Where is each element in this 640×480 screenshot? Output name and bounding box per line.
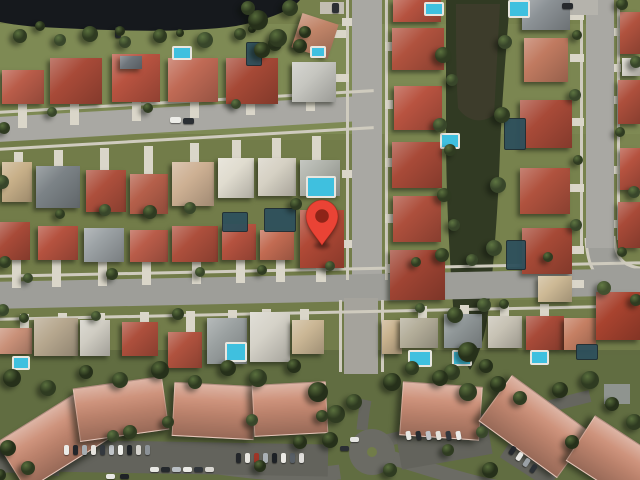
screened-pool xyxy=(504,118,526,150)
car xyxy=(194,467,203,472)
tree xyxy=(435,248,449,262)
driveway xyxy=(132,102,141,121)
driveway xyxy=(306,102,315,111)
car xyxy=(281,453,286,463)
tree xyxy=(490,376,506,392)
driveway xyxy=(190,102,199,118)
car xyxy=(340,446,349,451)
tree xyxy=(257,265,267,275)
tree xyxy=(143,103,153,113)
tree xyxy=(499,299,509,309)
house-roof xyxy=(620,148,640,190)
tree xyxy=(572,30,582,40)
car xyxy=(350,437,359,442)
tree xyxy=(316,410,328,422)
tree xyxy=(446,74,458,86)
house-roof xyxy=(168,58,218,102)
screened-pool xyxy=(264,208,296,232)
tree xyxy=(231,99,241,109)
tree xyxy=(220,360,236,376)
driveway xyxy=(190,143,199,163)
car xyxy=(150,467,159,472)
house-roof xyxy=(292,320,324,354)
driveway xyxy=(52,260,61,287)
car xyxy=(236,453,241,463)
driveway xyxy=(70,104,79,125)
house-roof xyxy=(292,62,336,102)
tree xyxy=(123,425,137,439)
tree xyxy=(287,359,301,373)
driveway xyxy=(570,246,584,254)
tree xyxy=(617,247,627,257)
house-roof xyxy=(538,276,572,302)
tree xyxy=(442,444,454,456)
screened-pool xyxy=(222,212,248,232)
tree xyxy=(79,365,93,379)
pin-dot xyxy=(315,209,329,223)
house-roof xyxy=(0,328,32,354)
tree xyxy=(241,1,255,15)
tree xyxy=(628,186,640,198)
house-roof xyxy=(172,162,214,206)
driveway xyxy=(572,280,584,288)
driveway xyxy=(236,260,245,283)
tree xyxy=(254,460,266,472)
driveway xyxy=(540,304,549,316)
tree xyxy=(3,369,21,387)
tree xyxy=(476,426,488,438)
tree xyxy=(444,144,456,156)
driveway xyxy=(232,140,241,158)
tree xyxy=(383,463,397,477)
car xyxy=(64,445,69,455)
driveway xyxy=(12,260,21,288)
screened-pool xyxy=(506,240,526,270)
swimming-pool xyxy=(530,350,549,365)
driveway xyxy=(144,146,153,174)
house-roof xyxy=(36,166,80,208)
driveway xyxy=(276,260,285,282)
tree xyxy=(435,47,451,63)
car xyxy=(205,467,214,472)
house-roof xyxy=(400,318,438,348)
car xyxy=(172,467,181,472)
house-roof xyxy=(618,80,640,124)
tree xyxy=(411,257,421,267)
tree xyxy=(346,394,362,410)
swimming-pool xyxy=(172,46,192,60)
map-pin[interactable] xyxy=(303,198,341,248)
driveway xyxy=(142,262,151,285)
swimming-pool xyxy=(310,46,326,58)
tree xyxy=(91,311,101,321)
driveway xyxy=(570,184,584,192)
tree xyxy=(246,414,258,426)
driveway xyxy=(300,309,309,320)
car xyxy=(332,3,339,13)
tree xyxy=(405,361,419,375)
sidewalk xyxy=(346,0,349,280)
screened-pool xyxy=(576,344,598,360)
driveway xyxy=(342,170,352,178)
car xyxy=(183,467,192,472)
driveway xyxy=(570,118,584,126)
car xyxy=(299,453,304,463)
tree xyxy=(543,252,553,262)
road-curve xyxy=(362,400,366,430)
street xyxy=(352,0,382,282)
house-roof xyxy=(488,316,522,348)
tree xyxy=(153,29,167,43)
swimming-pool xyxy=(424,2,444,16)
satellite-map[interactable] xyxy=(0,0,640,480)
driveway xyxy=(54,150,63,167)
car xyxy=(127,445,132,455)
driveway xyxy=(316,268,326,282)
tree xyxy=(477,298,491,312)
house-roof xyxy=(618,202,640,248)
house-roof xyxy=(620,12,640,54)
tree xyxy=(479,359,493,373)
tree xyxy=(433,118,447,132)
house-roof xyxy=(122,322,158,356)
tree xyxy=(630,56,640,68)
house-roof xyxy=(2,70,44,104)
tree xyxy=(494,107,510,123)
tree xyxy=(151,361,169,379)
tree xyxy=(597,281,611,295)
tree xyxy=(437,188,451,202)
tree xyxy=(458,342,478,362)
driveway xyxy=(100,148,109,171)
house-roof xyxy=(50,58,102,104)
driveway xyxy=(18,104,27,128)
tree xyxy=(99,204,111,216)
sidewalk xyxy=(339,300,342,372)
car xyxy=(272,453,277,463)
car xyxy=(82,445,87,455)
house-roof xyxy=(218,158,254,198)
tree xyxy=(459,383,477,401)
car xyxy=(562,3,573,9)
driveway xyxy=(570,54,584,62)
tree xyxy=(565,435,579,449)
tree xyxy=(249,369,267,387)
tree xyxy=(482,462,498,478)
tree xyxy=(486,240,502,256)
parking-lot xyxy=(367,447,377,457)
tree xyxy=(172,308,184,320)
tree xyxy=(282,0,298,16)
car xyxy=(170,117,181,123)
tree xyxy=(605,397,619,411)
car xyxy=(91,445,96,455)
tree xyxy=(630,294,640,306)
tree xyxy=(570,219,582,231)
driveway xyxy=(385,214,393,223)
car xyxy=(290,453,295,463)
car xyxy=(106,474,115,479)
house-roof xyxy=(393,196,441,242)
car xyxy=(145,445,150,455)
house-roof xyxy=(250,312,290,362)
tree xyxy=(107,430,119,442)
tree xyxy=(498,35,512,49)
driveway xyxy=(140,312,149,322)
tree xyxy=(106,268,118,280)
tree xyxy=(327,405,345,423)
tree xyxy=(115,26,125,36)
house-roof xyxy=(524,38,568,82)
tree xyxy=(0,440,16,456)
tree xyxy=(490,177,506,193)
tree xyxy=(415,303,425,313)
tree xyxy=(143,205,157,219)
driveway xyxy=(186,311,195,332)
street xyxy=(586,0,614,248)
car xyxy=(120,474,129,479)
tree xyxy=(188,375,202,389)
tree xyxy=(552,382,568,398)
swimming-pool xyxy=(306,176,336,198)
tree xyxy=(290,198,302,210)
house-roof xyxy=(38,226,78,260)
tree xyxy=(82,26,98,42)
house-roof xyxy=(526,316,564,350)
house-roof xyxy=(392,142,442,188)
tree xyxy=(13,29,27,43)
tree xyxy=(47,107,57,117)
tree xyxy=(299,26,311,38)
house-roof xyxy=(258,158,296,196)
tree xyxy=(269,29,287,47)
house-roof xyxy=(84,228,124,262)
car xyxy=(109,445,114,455)
tree xyxy=(21,461,35,475)
swimming-pool xyxy=(12,356,30,370)
tree xyxy=(581,371,599,389)
driveway xyxy=(272,138,281,158)
tree xyxy=(325,261,335,271)
car xyxy=(118,445,123,455)
house-roof xyxy=(172,226,218,262)
car xyxy=(245,453,250,463)
driveway xyxy=(246,104,255,115)
house-roof xyxy=(260,230,294,260)
tree xyxy=(293,435,307,449)
swimming-pool xyxy=(225,342,247,362)
tree xyxy=(615,127,625,137)
tree xyxy=(383,373,401,391)
tree xyxy=(234,28,246,40)
tree xyxy=(308,382,328,402)
tree xyxy=(448,219,460,231)
house-roof xyxy=(168,332,202,368)
tree xyxy=(513,391,527,405)
car xyxy=(100,445,105,455)
house-roof xyxy=(120,56,142,69)
tree xyxy=(195,267,205,277)
tree xyxy=(254,42,270,58)
tree xyxy=(176,29,184,37)
tree xyxy=(55,209,65,219)
tree xyxy=(119,36,131,48)
tree xyxy=(23,273,33,283)
tree xyxy=(112,372,128,388)
car xyxy=(73,445,78,455)
driveway xyxy=(385,100,393,109)
driveway xyxy=(614,64,621,72)
house-roof xyxy=(34,318,78,356)
tree xyxy=(19,313,29,323)
driveway xyxy=(342,18,352,26)
tree xyxy=(184,202,196,214)
tree xyxy=(573,155,583,165)
car xyxy=(183,118,194,124)
driveway xyxy=(312,136,321,160)
house-roof xyxy=(382,320,402,354)
house-roof xyxy=(520,168,570,214)
tree xyxy=(40,380,56,396)
car xyxy=(136,445,141,455)
house-roof xyxy=(0,222,30,260)
tree xyxy=(293,39,307,53)
tree xyxy=(447,307,463,323)
tree xyxy=(197,32,213,48)
tree xyxy=(162,416,174,428)
house-roof xyxy=(130,230,168,262)
house-roof xyxy=(522,228,572,274)
tree xyxy=(569,89,581,101)
house-roof xyxy=(520,100,572,148)
tree xyxy=(626,414,640,430)
swimming-pool xyxy=(508,0,530,18)
tree xyxy=(54,34,66,46)
house-roof xyxy=(80,320,110,356)
car xyxy=(161,467,170,472)
tree xyxy=(432,370,448,386)
tree xyxy=(466,254,478,266)
condo-building xyxy=(172,382,257,440)
tree xyxy=(35,21,45,31)
tree xyxy=(322,432,338,448)
